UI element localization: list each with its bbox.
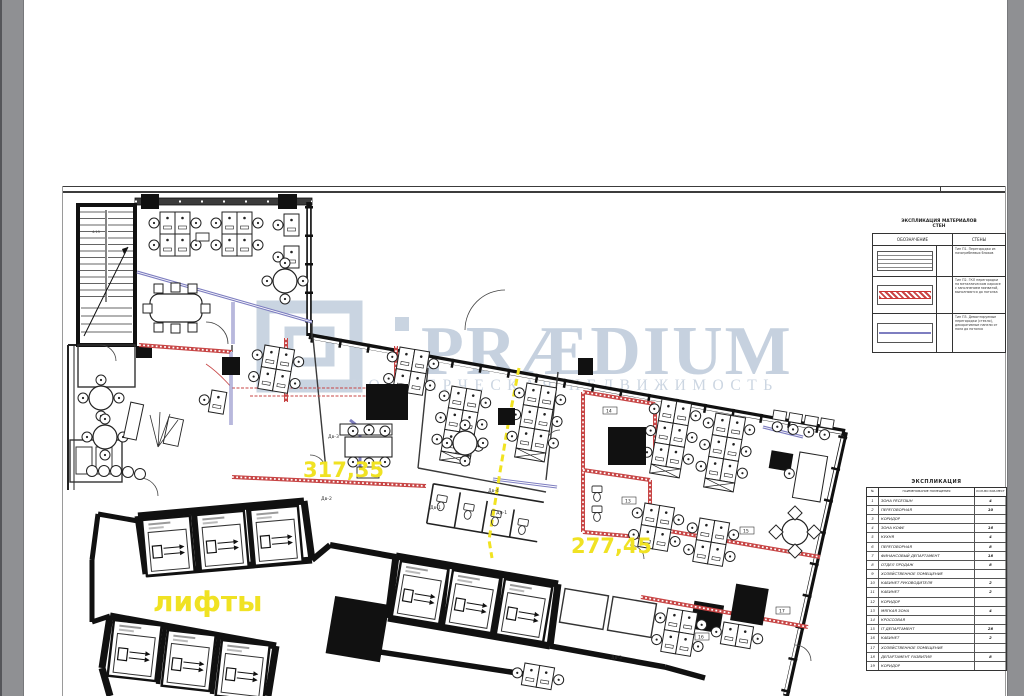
demising-line <box>489 368 519 558</box>
wall-type3-symbol-icon <box>877 323 933 343</box>
stair-label: 4.15 <box>92 230 100 234</box>
desk-pod <box>639 397 703 480</box>
area-label-right: 277,45 <box>571 534 652 558</box>
explication-row: 10КАБИНЕТ РУКОВОДИТЕЛЯ2 <box>867 579 1006 588</box>
explication-row: 1ЗОНА РЕСЕПШН4 <box>867 497 1006 506</box>
wall-materials-legend: ЭКСПЛИКАЦИЯ МАТЕРИАЛОВ СТЕН ОБОЗНАЧЕНИЕ … <box>872 219 1006 353</box>
round-table <box>82 414 128 460</box>
explication-row: 12КОРИДОР <box>867 598 1006 607</box>
desk-pod <box>211 212 263 256</box>
svg-text:Дв-4: Дв-4 <box>488 488 499 494</box>
desk-pod <box>693 411 757 494</box>
stairs-icon <box>78 205 135 345</box>
explication-title: ЭКСПЛИКАЦИЯ <box>866 479 1007 485</box>
svg-text:17: 17 <box>779 609 785 615</box>
explication-row: 17ХОЗЯЙСТВЕННОЕ ПОМЕЩЕНИЕ <box>867 644 1006 653</box>
explication-row: 6ПЕРЕГОВОРНАЯ8 <box>867 543 1006 552</box>
explication-header: № НАИМЕНОВАНИЕ ПОМЕЩЕНИЯ КОЛ-ВО РАБ.МЕСТ <box>867 488 1006 497</box>
materials-row-p1: Тип П1. Перегородки из пазогребневых бло… <box>873 246 1005 277</box>
wall-type1-symbol-icon <box>877 251 933 271</box>
coat-rack-icon <box>87 466 146 480</box>
room-explication: ЭКСПЛИКАЦИЯ № НАИМЕНОВАНИЕ ПОМЕЩЕНИЯ КОЛ… <box>866 479 1007 671</box>
explication-row: 14КРОССОВАЯ <box>867 616 1006 625</box>
svg-text:Дв-2: Дв-2 <box>321 496 332 502</box>
area-label-left: 317,35 <box>303 458 384 482</box>
desk <box>273 214 299 236</box>
svg-text:Дв-1: Дв-1 <box>430 505 441 511</box>
explication-row: 3КОРИДОР <box>867 515 1006 524</box>
svg-text:Дн-1: Дн-1 <box>496 510 507 516</box>
explication-row: 2ПЕРЕГОВОРНАЯ10 <box>867 506 1006 515</box>
svg-text:Дв-3: Дв-3 <box>328 434 339 440</box>
desk-pod <box>149 212 201 256</box>
elevators-label: лифты <box>153 585 262 618</box>
materials-row-p3: Тип П3. Демонтируемые перегородки (стекл… <box>873 314 1005 352</box>
materials-row-p2: Тип П2. ГКЛ перегородки на металлическом… <box>873 277 1005 314</box>
round-table <box>262 258 308 304</box>
svg-text:13: 13 <box>625 499 631 505</box>
svg-text:Дв-3: Дв-3 <box>611 655 622 661</box>
desk-pod <box>511 661 566 691</box>
explication-row: 15IT ДЕПАРТАМЕНТ28 <box>867 625 1006 634</box>
explication-row: 5КУХНЯ4 <box>867 533 1006 542</box>
desk-pod <box>247 343 306 395</box>
praedium-watermark: PRÆDIUM КОММЕРЧЕСКАЯ НЕДВИЖИМОСТЬ <box>263 307 793 394</box>
explication-row: 4ЗОНА КОФЕ16 <box>867 524 1006 533</box>
explication-row: 13МЯГКАЯ ЗОНА4 <box>867 607 1006 616</box>
explication-row: 18ДЕПАРТАМЕНТ РАЗВИТИЯ8 <box>867 653 1006 662</box>
explication-row: 19КОРИДОР <box>867 662 1006 670</box>
explication-row: 11КАБИНЕТ2 <box>867 588 1006 597</box>
round-table <box>78 375 124 421</box>
desk <box>198 388 227 414</box>
materials-col-walls: СТЕНЫ <box>953 234 1005 245</box>
explication-row: 7ФИНАНСОВЫЙ ДЕПАРТАМЕНТ18 <box>867 552 1006 561</box>
explication-row: 9ХОЗЯЙСТВЕННОЕ ПОМЕЩЕНИЕ <box>867 570 1006 579</box>
svg-text:14: 14 <box>606 409 612 415</box>
materials-legend-title: ЭКСПЛИКАЦИЯ МАТЕРИАЛОВ СТЕН <box>872 219 1006 230</box>
explication-row: 8ОТДЕЛ ПРОДАЖ8 <box>867 561 1006 570</box>
floor-plan-screenshot: PRÆDIUM КОММЕРЧЕСКАЯ НЕДВИЖИМОСТЬ <box>0 0 1024 696</box>
toilet-icon <box>592 486 602 501</box>
materials-legend-table: ОБОЗНАЧЕНИЕ СТЕНЫ Тип П1. Перегородки из… <box>872 233 1006 353</box>
explication-table: № НАИМЕНОВАНИЕ ПОМЕЩЕНИЯ КОЛ-ВО РАБ.МЕСТ… <box>866 487 1007 671</box>
explication-rows: 1ЗОНА РЕСЕПШН42ПЕРЕГОВОРНАЯ103КОРИДОР4ЗО… <box>867 497 1006 671</box>
explication-row: 16КАБИНЕТ2 <box>867 634 1006 643</box>
toilet-icon <box>592 506 602 521</box>
svg-text:15: 15 <box>743 529 749 535</box>
wall-type2-symbol-icon <box>877 285 933 305</box>
materials-col-symbol: ОБОЗНАЧЕНИЕ <box>873 234 953 245</box>
svg-text:16: 16 <box>698 635 704 641</box>
